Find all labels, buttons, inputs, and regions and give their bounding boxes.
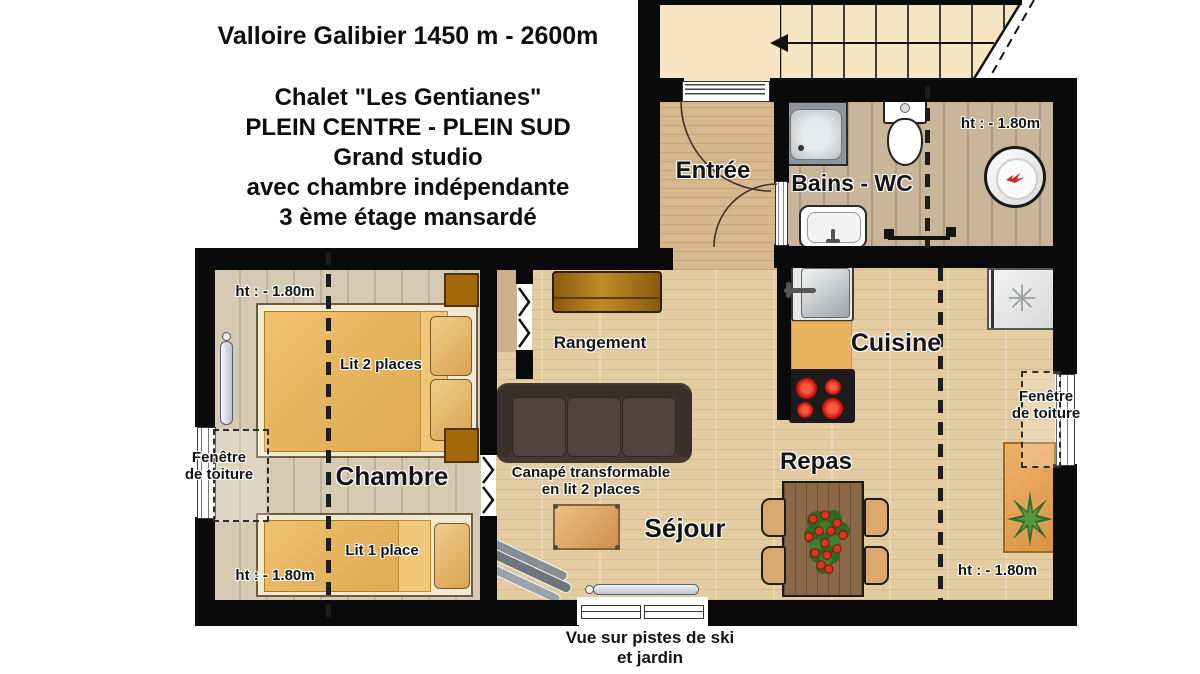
freezer-glyph: ✳ [1007, 281, 1037, 317]
radiator-icon [220, 341, 233, 425]
stove-burner [825, 379, 841, 395]
radiator-valve [585, 585, 594, 594]
roof-window-label-left: Fenêtre de toiture [169, 449, 269, 483]
closet-floor [497, 268, 517, 352]
room-label-sejour: Séjour [625, 513, 745, 544]
wall [195, 248, 215, 427]
chair [864, 546, 889, 585]
mansard-height-line [938, 268, 943, 600]
bifold-door-icon [481, 455, 496, 516]
wall [658, 78, 684, 102]
sofa-cushion [567, 397, 621, 457]
view-label: Vue sur pistes de ski et jardin [552, 628, 748, 668]
location-line: PLEIN CENTRE - PLEIN SUD [148, 113, 668, 143]
wall [1053, 78, 1077, 374]
sofa-label: Canapé transformable en lit 2 places [501, 464, 681, 498]
towel-rail-icon [884, 227, 960, 245]
chair [864, 498, 889, 537]
nightstand [444, 273, 479, 307]
table-leg [553, 504, 558, 509]
floor-plan-page: { "header": { "line1": "Valloire Galibie… [0, 0, 1200, 674]
table-leg [615, 545, 620, 550]
studio-line: Grand studio [148, 143, 668, 173]
roof-window-label-line: de toiture [169, 466, 269, 483]
mansard-height-line [326, 252, 331, 622]
faucet-handle [786, 282, 791, 298]
rail-post [946, 227, 956, 237]
sofa-cushion [622, 397, 676, 457]
view-label-line: et jardin [552, 648, 748, 668]
bathroom-sink-icon [799, 205, 867, 249]
washing-machine-icon [984, 146, 1046, 208]
sofa-label-line: Canapé transformable [501, 464, 681, 481]
wall [480, 262, 497, 455]
roof-window-label-line: Fenêtre [169, 449, 269, 466]
sofa [496, 383, 692, 463]
freezer-icon: ✳ [987, 268, 1057, 330]
height-note-bains: ht : - 1.80m [948, 115, 1053, 132]
flowers-icon [795, 503, 859, 577]
closet-wall-stub [516, 350, 533, 379]
stove-icon [789, 369, 855, 423]
shower-icon [782, 101, 848, 166]
door-leaf-lines [685, 84, 765, 95]
bed-label-single: Lit 1 place [332, 542, 432, 559]
sofa-cushion [512, 397, 566, 457]
wall [775, 246, 1055, 268]
title-block: Valloire Galibier 1450 m - 2600m Chalet … [148, 22, 668, 233]
washer-logo [1005, 171, 1027, 185]
closet-bifold-door [517, 284, 532, 350]
sofa-label-line: en lit 2 places [501, 481, 681, 498]
roof-window-label-line: Fenêtre [996, 388, 1096, 405]
height-note-sejour: ht : - 1.80m [945, 562, 1050, 579]
view-label-line: Vue sur pistes de ski [552, 628, 748, 648]
stove-burner [822, 398, 843, 419]
faucet-handle [826, 239, 840, 243]
wall [195, 600, 579, 626]
area-label-rangement: Rangement [540, 333, 660, 353]
height-note-chambre-top: ht : - 1.80m [225, 283, 325, 300]
chair [761, 546, 786, 585]
shower-tray [790, 109, 842, 160]
mansard-height-line [925, 86, 930, 248]
rail-post [884, 229, 894, 239]
stove-burner [796, 378, 817, 399]
sofa-armrest [676, 389, 692, 457]
room-label-chambre: Chambre [332, 461, 452, 492]
bed-label-double: Lit 2 places [331, 356, 431, 373]
pillow [430, 316, 472, 376]
floor-line: 3 ème étage mansardé [148, 203, 668, 233]
bifold-door-icon [517, 284, 532, 350]
room-label-entree: Entrée [663, 157, 763, 185]
freezer-door-edge [991, 270, 994, 328]
dresser [552, 271, 662, 313]
chambre-bifold-door [481, 455, 496, 516]
rail-bar [888, 236, 950, 240]
toilet-bowl [887, 118, 923, 166]
coffee-table [553, 504, 620, 550]
sofa-back [502, 385, 686, 397]
radiator-valve [222, 332, 231, 341]
dresser-drawer-line [554, 297, 660, 299]
window-pane [644, 605, 704, 619]
wall [638, 0, 660, 270]
nightstand [444, 428, 479, 463]
area-label-repas: Repas [756, 448, 876, 476]
wall [195, 248, 673, 270]
stair-top-edge [658, 0, 1022, 5]
south-window [577, 597, 708, 625]
wall [770, 78, 1077, 102]
room-label-cuisine: Cuisine [836, 329, 956, 358]
room-label-bains: Bains - WC [786, 170, 918, 197]
window-pane [581, 605, 641, 619]
pillow [434, 523, 470, 589]
chalet-name: Chalet "Les Gentianes" [148, 83, 668, 113]
closet-wall-stub [516, 266, 533, 284]
plant-icon [1006, 487, 1054, 551]
wall [708, 600, 1077, 626]
wall [480, 516, 497, 606]
roof-window-label-right: Fenêtre de toiture [996, 388, 1096, 422]
toilet-icon [883, 98, 925, 164]
toilet-flush-button [900, 103, 910, 113]
chair [761, 498, 786, 537]
radiator-icon [593, 584, 699, 595]
resort-title: Valloire Galibier 1450 m - 2600m [148, 22, 668, 51]
stair-landing [660, 4, 780, 82]
stove-burner [797, 402, 813, 418]
sofa-armrest [496, 389, 512, 457]
sink-basin [801, 268, 850, 318]
shower-drain [798, 145, 804, 151]
roof-window-label-line: de toiture [996, 405, 1096, 422]
bedroom-line: avec chambre indépendante [148, 173, 668, 203]
height-note-chambre-bottom: ht : - 1.80m [225, 567, 325, 584]
table-leg [615, 504, 620, 509]
entrance-door [682, 81, 770, 102]
